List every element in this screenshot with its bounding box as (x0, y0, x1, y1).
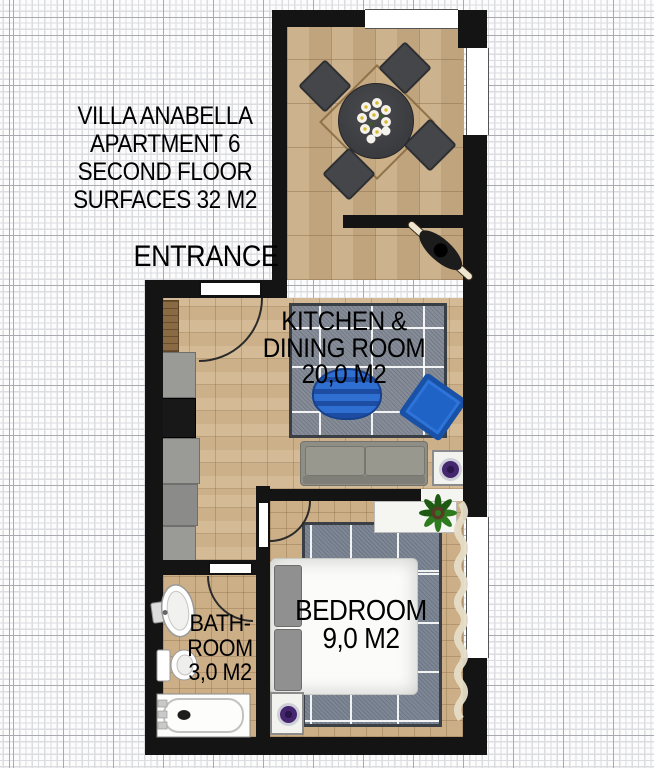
room-name: KITCHEN & (245, 308, 443, 335)
stool-cushion (277, 703, 300, 726)
room-area: 3,0 M2 (112, 661, 328, 686)
dresser (374, 501, 457, 533)
wall-terrace-top (272, 10, 365, 27)
wall-bottom (145, 737, 487, 755)
dining-table (338, 83, 414, 159)
wall-kitchen-bedroom (256, 489, 421, 501)
kitchen-counter (161, 352, 196, 398)
terrace-window (365, 9, 458, 29)
floor-plan: VILLA ANABELLA APARTMENT 6 SECOND FLOOR … (0, 0, 654, 768)
title-line: VILLA ANABELLA (57, 102, 273, 130)
bedroom-door (257, 501, 270, 549)
title-line: SECOND FLOOR (57, 158, 273, 186)
bedroom-window (466, 517, 489, 658)
wood-cabinet (161, 300, 179, 352)
room-name: ROOM (112, 637, 328, 662)
pass-through (421, 489, 463, 501)
kitchen-counter (161, 438, 200, 484)
stool (270, 692, 304, 735)
wall-terrace-divider (343, 215, 465, 228)
entrance-label: ENTRANCE (98, 242, 314, 272)
title-line: APARTMENT 6 (57, 130, 273, 158)
plan-title: VILLA ANABELLA APARTMENT 6 SECOND FLOOR … (57, 102, 273, 214)
bathroom-door (208, 562, 253, 575)
entrance-door (199, 281, 262, 297)
room-name: DINING ROOM (245, 335, 443, 362)
sofa-cushion (305, 446, 365, 476)
room-area: 20,0 M2 (245, 361, 443, 388)
side-table-decor (439, 458, 462, 481)
wall-right-mid (463, 135, 487, 520)
sofa (300, 441, 428, 486)
room-name: BATH- (112, 612, 328, 637)
sofa-back (303, 476, 425, 484)
title-line: SURFACES 32 M2 (57, 186, 273, 214)
bathroom-label: BATH- ROOM 3,0 M2 (112, 612, 328, 686)
cooktop (161, 398, 196, 438)
kitchen-counter (161, 484, 198, 526)
side-table (432, 450, 466, 486)
kitchen-dining-label: KITCHEN & DINING ROOM 20,0 M2 (245, 308, 443, 388)
wall-top-right-corner (458, 10, 487, 48)
terrace-side-window (466, 48, 489, 135)
kitchen-counter (161, 526, 196, 562)
sofa-cushion (365, 446, 425, 476)
